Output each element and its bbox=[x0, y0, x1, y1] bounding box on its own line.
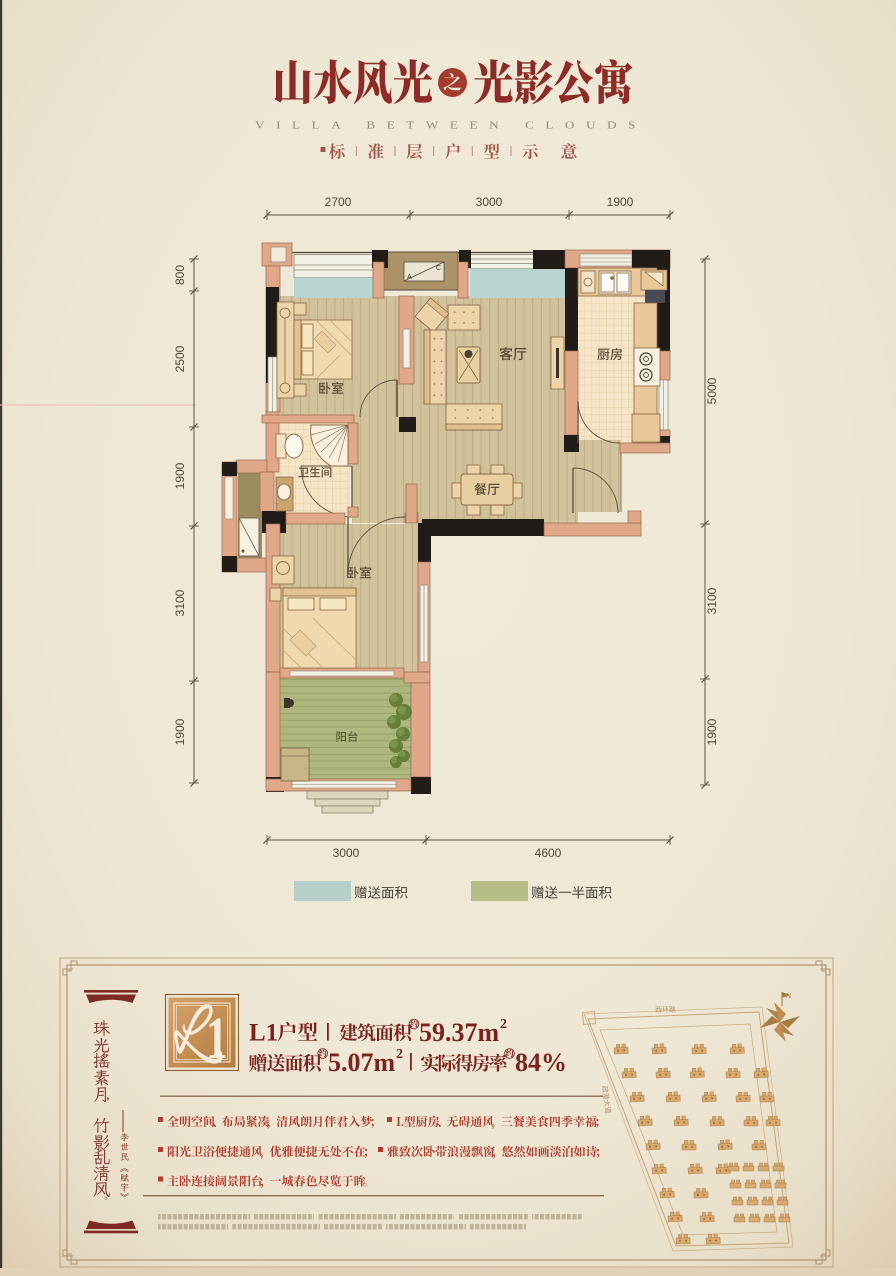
svg-text:1900: 1900 bbox=[173, 462, 187, 489]
svg-text:1900: 1900 bbox=[607, 195, 634, 209]
svg-text:2700: 2700 bbox=[325, 195, 352, 209]
svg-text:1900: 1900 bbox=[705, 718, 719, 745]
svg-text:N: N bbox=[786, 993, 791, 1000]
svg-text:84%: 84% bbox=[515, 1048, 567, 1077]
svg-text:2500: 2500 bbox=[173, 345, 187, 372]
svg-text:59.37m: 59.37m bbox=[419, 1018, 500, 1047]
svg-text:3000: 3000 bbox=[333, 846, 360, 860]
svg-text:2: 2 bbox=[500, 1017, 507, 1032]
svg-text:VILLA BETWEEN CLOUDS: VILLA BETWEEN CLOUDS bbox=[255, 121, 647, 132]
svg-text:3100: 3100 bbox=[705, 587, 719, 614]
svg-text:3100: 3100 bbox=[173, 589, 187, 616]
svg-text:2: 2 bbox=[396, 1047, 403, 1062]
svg-text:C: C bbox=[436, 265, 441, 272]
svg-text:3000: 3000 bbox=[476, 195, 503, 209]
svg-text:1900: 1900 bbox=[173, 718, 187, 745]
svg-text:5000: 5000 bbox=[705, 377, 719, 404]
svg-text:5.07m: 5.07m bbox=[328, 1048, 396, 1077]
svg-text:4600: 4600 bbox=[535, 846, 562, 860]
svg-text:L1: L1 bbox=[249, 1020, 278, 1047]
svg-text:A: A bbox=[407, 274, 412, 281]
svg-text:800: 800 bbox=[173, 265, 187, 285]
